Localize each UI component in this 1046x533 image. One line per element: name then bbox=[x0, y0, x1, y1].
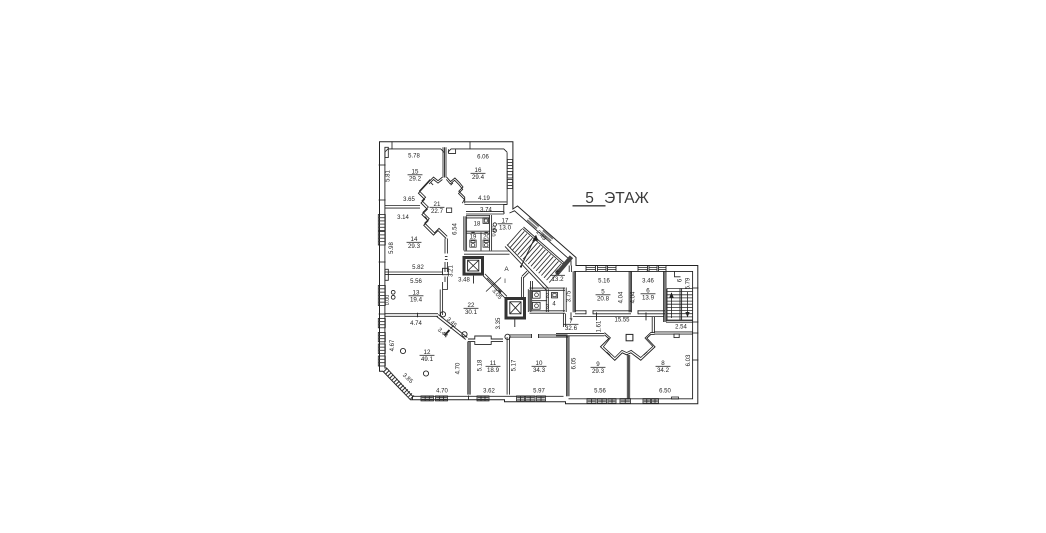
svg-text:32.6: 32.6 bbox=[565, 325, 578, 332]
svg-text:5.56: 5.56 bbox=[410, 279, 422, 285]
svg-text:13.9: 13.9 bbox=[642, 295, 655, 302]
svg-text:4.04: 4.04 bbox=[631, 291, 637, 303]
svg-text:4.70: 4.70 bbox=[436, 389, 448, 395]
svg-text:2.54: 2.54 bbox=[675, 325, 687, 331]
svg-text:13.2: 13.2 bbox=[551, 276, 564, 283]
svg-text:4.74: 4.74 bbox=[410, 321, 422, 327]
svg-text:0.00: 0.00 bbox=[492, 226, 498, 237]
svg-text:3.46: 3.46 bbox=[642, 279, 654, 285]
svg-text:18: 18 bbox=[474, 222, 481, 228]
svg-text:4.19: 4.19 bbox=[478, 196, 490, 202]
svg-text:29.3: 29.3 bbox=[408, 243, 421, 250]
svg-text:15.55: 15.55 bbox=[614, 318, 630, 324]
svg-text:3.74: 3.74 bbox=[480, 208, 492, 214]
svg-text:4.04: 4.04 bbox=[619, 291, 625, 303]
svg-text:5.18: 5.18 bbox=[478, 359, 484, 371]
svg-text:1.61: 1.61 bbox=[597, 320, 603, 332]
svg-text:3.65: 3.65 bbox=[403, 197, 415, 203]
svg-text:18.9: 18.9 bbox=[487, 367, 500, 374]
svg-text:20.8: 20.8 bbox=[597, 296, 610, 303]
svg-text:A: A bbox=[504, 266, 509, 273]
svg-text:5.17: 5.17 bbox=[512, 359, 518, 371]
svg-text:5.97: 5.97 bbox=[533, 389, 545, 395]
svg-text:4.67: 4.67 bbox=[390, 339, 396, 351]
svg-text:22.7: 22.7 bbox=[431, 208, 444, 215]
svg-text:19.4: 19.4 bbox=[410, 297, 423, 304]
svg-text:3.75: 3.75 bbox=[567, 290, 573, 302]
svg-text:30.1: 30.1 bbox=[465, 309, 478, 316]
svg-text:6.06: 6.06 bbox=[477, 155, 489, 161]
svg-text:6.54: 6.54 bbox=[453, 223, 459, 235]
svg-text:49.1: 49.1 bbox=[421, 356, 434, 363]
svg-text:29.4: 29.4 bbox=[472, 174, 485, 181]
svg-text:3.21: 3.21 bbox=[449, 265, 455, 277]
svg-text:5.56: 5.56 bbox=[594, 389, 606, 395]
svg-text:6.03: 6.03 bbox=[686, 354, 692, 366]
svg-text:5.16: 5.16 bbox=[598, 279, 610, 285]
svg-text:0.00: 0.00 bbox=[385, 295, 391, 306]
svg-text:ЭТАЖ: ЭТАЖ bbox=[604, 190, 649, 207]
svg-text:I: I bbox=[504, 278, 506, 285]
svg-text:13.0: 13.0 bbox=[499, 225, 512, 232]
svg-text:3.48: 3.48 bbox=[458, 278, 470, 284]
svg-text:6.05: 6.05 bbox=[572, 357, 578, 369]
svg-text:20: 20 bbox=[483, 235, 490, 241]
svg-text:5.78: 5.78 bbox=[408, 154, 420, 160]
svg-text:3.62: 3.62 bbox=[483, 389, 495, 395]
svg-text:5.81: 5.81 bbox=[386, 170, 392, 182]
svg-text:34.2: 34.2 bbox=[657, 367, 670, 374]
svg-text:5.79: 5.79 bbox=[686, 277, 692, 289]
svg-text:5: 5 bbox=[585, 190, 594, 207]
svg-text:5.82: 5.82 bbox=[412, 265, 424, 271]
svg-text:3.14: 3.14 bbox=[397, 215, 409, 221]
svg-text:29.3: 29.3 bbox=[592, 368, 605, 375]
svg-text:29.2: 29.2 bbox=[409, 176, 422, 183]
svg-text:4.70: 4.70 bbox=[456, 362, 462, 374]
svg-text:3.35: 3.35 bbox=[496, 317, 502, 329]
svg-text:6.50: 6.50 bbox=[659, 389, 671, 395]
svg-text:19: 19 bbox=[470, 235, 477, 241]
svg-text:34.3: 34.3 bbox=[533, 367, 546, 374]
svg-text:5.98: 5.98 bbox=[389, 242, 395, 254]
